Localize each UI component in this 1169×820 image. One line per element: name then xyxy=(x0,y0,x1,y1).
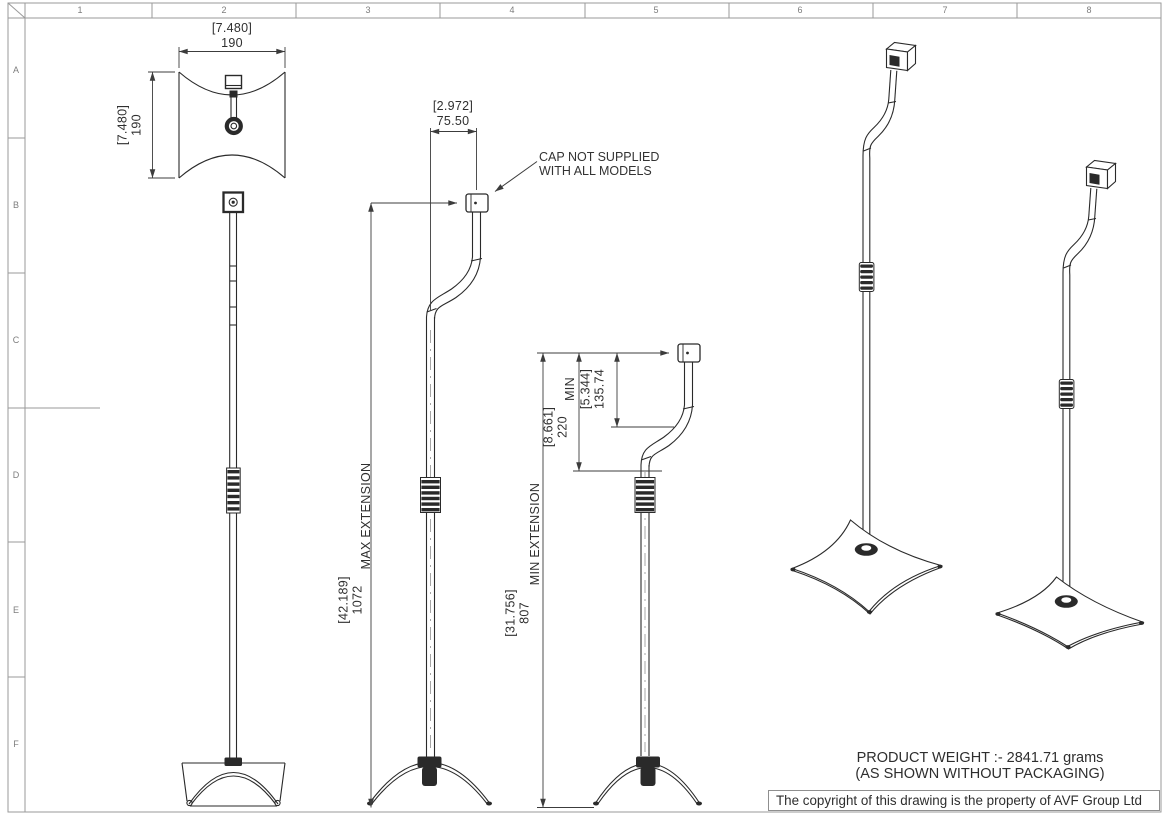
cap-note-line1: CAP NOT SUPPLIED xyxy=(539,150,659,164)
cap-note: CAP NOT SUPPLIED WITH ALL MODELS xyxy=(539,150,659,179)
drawing-canvas xyxy=(0,0,1169,820)
side-view-min xyxy=(593,344,702,806)
grid-col-label: 7 xyxy=(942,5,947,15)
grid-row-label: D xyxy=(13,470,20,480)
grid-row-label: F xyxy=(13,739,19,749)
product-weight-line2: (AS SHOWN WITHOUT PACKAGING) xyxy=(790,767,1169,783)
front-view-closed xyxy=(182,193,285,807)
dim-min-height-mm: 220 xyxy=(556,407,570,447)
grid-col-label: 3 xyxy=(365,5,370,15)
dim-base-width-in: [7.480] xyxy=(212,21,252,35)
dim-max-extension-in: [42.189] xyxy=(337,576,351,624)
dim-cap-drop-values: [5.344] 135.74 xyxy=(579,369,608,409)
dim-base-width-mm: 190 xyxy=(221,36,243,50)
grid-col-label: 1 xyxy=(77,5,82,15)
grid-col-label: 2 xyxy=(221,5,226,15)
dim-pole-offset-mm: 75.50 xyxy=(437,114,470,128)
side-view-max xyxy=(367,194,492,806)
dim-min-height-values: [8.661] 220 xyxy=(542,407,571,447)
side-view-max-dims xyxy=(371,128,537,808)
grid-col-label: 4 xyxy=(509,5,514,15)
base-top-view-dims xyxy=(148,47,285,178)
dim-min-extension-values: [31.756] 807 xyxy=(504,589,533,637)
dim-cap-drop-in: [5.344] xyxy=(579,369,593,409)
copyright-box: The copyright of this drawing is the pro… xyxy=(768,790,1160,811)
dim-min-height-label: MIN xyxy=(563,377,577,401)
base-top-view xyxy=(179,72,285,178)
dim-min-extension-mm: 807 xyxy=(518,589,532,637)
grid-row-label: C xyxy=(13,335,20,345)
dim-max-extension-label: MAX EXTENSION xyxy=(359,463,373,570)
drawing-sheet: 1 2 3 4 5 6 7 8 A B C D E F [7.480] 190 … xyxy=(0,0,1169,820)
dim-cap-drop-mm: 135.74 xyxy=(593,369,607,409)
dim-min-extension-label: MIN EXTENSION xyxy=(528,483,542,586)
iso-view-max xyxy=(790,43,942,615)
dim-base-depth-mm: 190 xyxy=(130,105,144,145)
iso-view-min xyxy=(995,161,1144,650)
dim-base-depth-in: [7.480] xyxy=(116,105,130,145)
grid-row-label: E xyxy=(13,605,19,615)
grid-col-label: 6 xyxy=(797,5,802,15)
product-weight-note: PRODUCT WEIGHT :- 2841.71 grams (AS SHOW… xyxy=(790,751,1169,783)
cap-note-line2: WITH ALL MODELS xyxy=(539,164,659,178)
grid-col-label: 5 xyxy=(653,5,658,15)
dim-max-extension-mm: 1072 xyxy=(351,576,365,624)
dim-min-height-in: [8.661] xyxy=(542,407,556,447)
dim-pole-offset-in: [2.972] xyxy=(433,99,473,113)
copyright-text: The copyright of this drawing is the pro… xyxy=(776,793,1142,808)
dim-max-extension-values: [42.189] 1072 xyxy=(337,576,366,624)
dim-min-extension-in: [31.756] xyxy=(504,589,518,637)
grid-col-label: 8 xyxy=(1086,5,1091,15)
dim-base-depth: [7.480] 190 xyxy=(116,105,145,145)
grid-row-label: A xyxy=(13,65,19,75)
grid-row-label: B xyxy=(13,200,19,210)
product-weight-line1: PRODUCT WEIGHT :- 2841.71 grams xyxy=(790,751,1169,767)
